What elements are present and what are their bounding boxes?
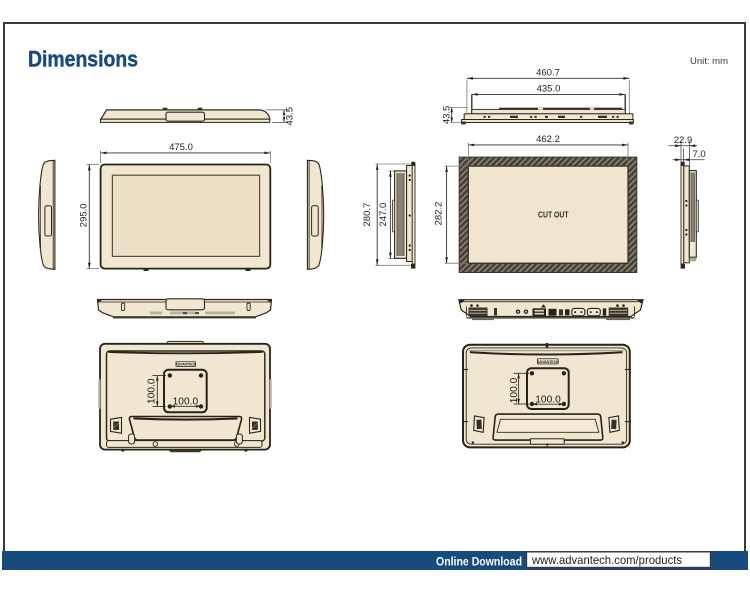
svg-text:CUT OUT: CUT OUT <box>538 209 569 219</box>
svg-text:295.0: 295.0 <box>79 203 90 227</box>
svg-text:100.0: 100.0 <box>147 378 158 404</box>
svg-text:282.2: 282.2 <box>434 202 445 226</box>
svg-text:435.0: 435.0 <box>537 84 561 95</box>
svg-text:247.0: 247.0 <box>378 203 389 227</box>
svg-text:460.7: 460.7 <box>536 68 560 79</box>
svg-text:Dimensions: Dimensions <box>28 47 138 72</box>
svg-text:43.5: 43.5 <box>441 106 452 125</box>
svg-text:22.9: 22.9 <box>674 135 693 146</box>
svg-text:Unit: mm: Unit: mm <box>690 56 728 67</box>
svg-text:ADVANTECH: ADVANTECH <box>537 360 559 364</box>
svg-text:ADVANTECH: ADVANTECH <box>175 363 196 367</box>
svg-text:280.7: 280.7 <box>362 203 373 227</box>
svg-text:Online Download: Online Download <box>436 554 522 568</box>
svg-text:43.5: 43.5 <box>285 107 296 126</box>
svg-text:www.advantech.com/products: www.advantech.com/products <box>531 553 682 567</box>
svg-text:462.2: 462.2 <box>536 134 560 145</box>
svg-text:100.0: 100.0 <box>509 377 520 403</box>
svg-text:7.0: 7.0 <box>693 149 706 160</box>
svg-text:100.0: 100.0 <box>535 395 561 406</box>
svg-text:475.0: 475.0 <box>169 142 193 153</box>
svg-text:100.0: 100.0 <box>173 396 199 407</box>
